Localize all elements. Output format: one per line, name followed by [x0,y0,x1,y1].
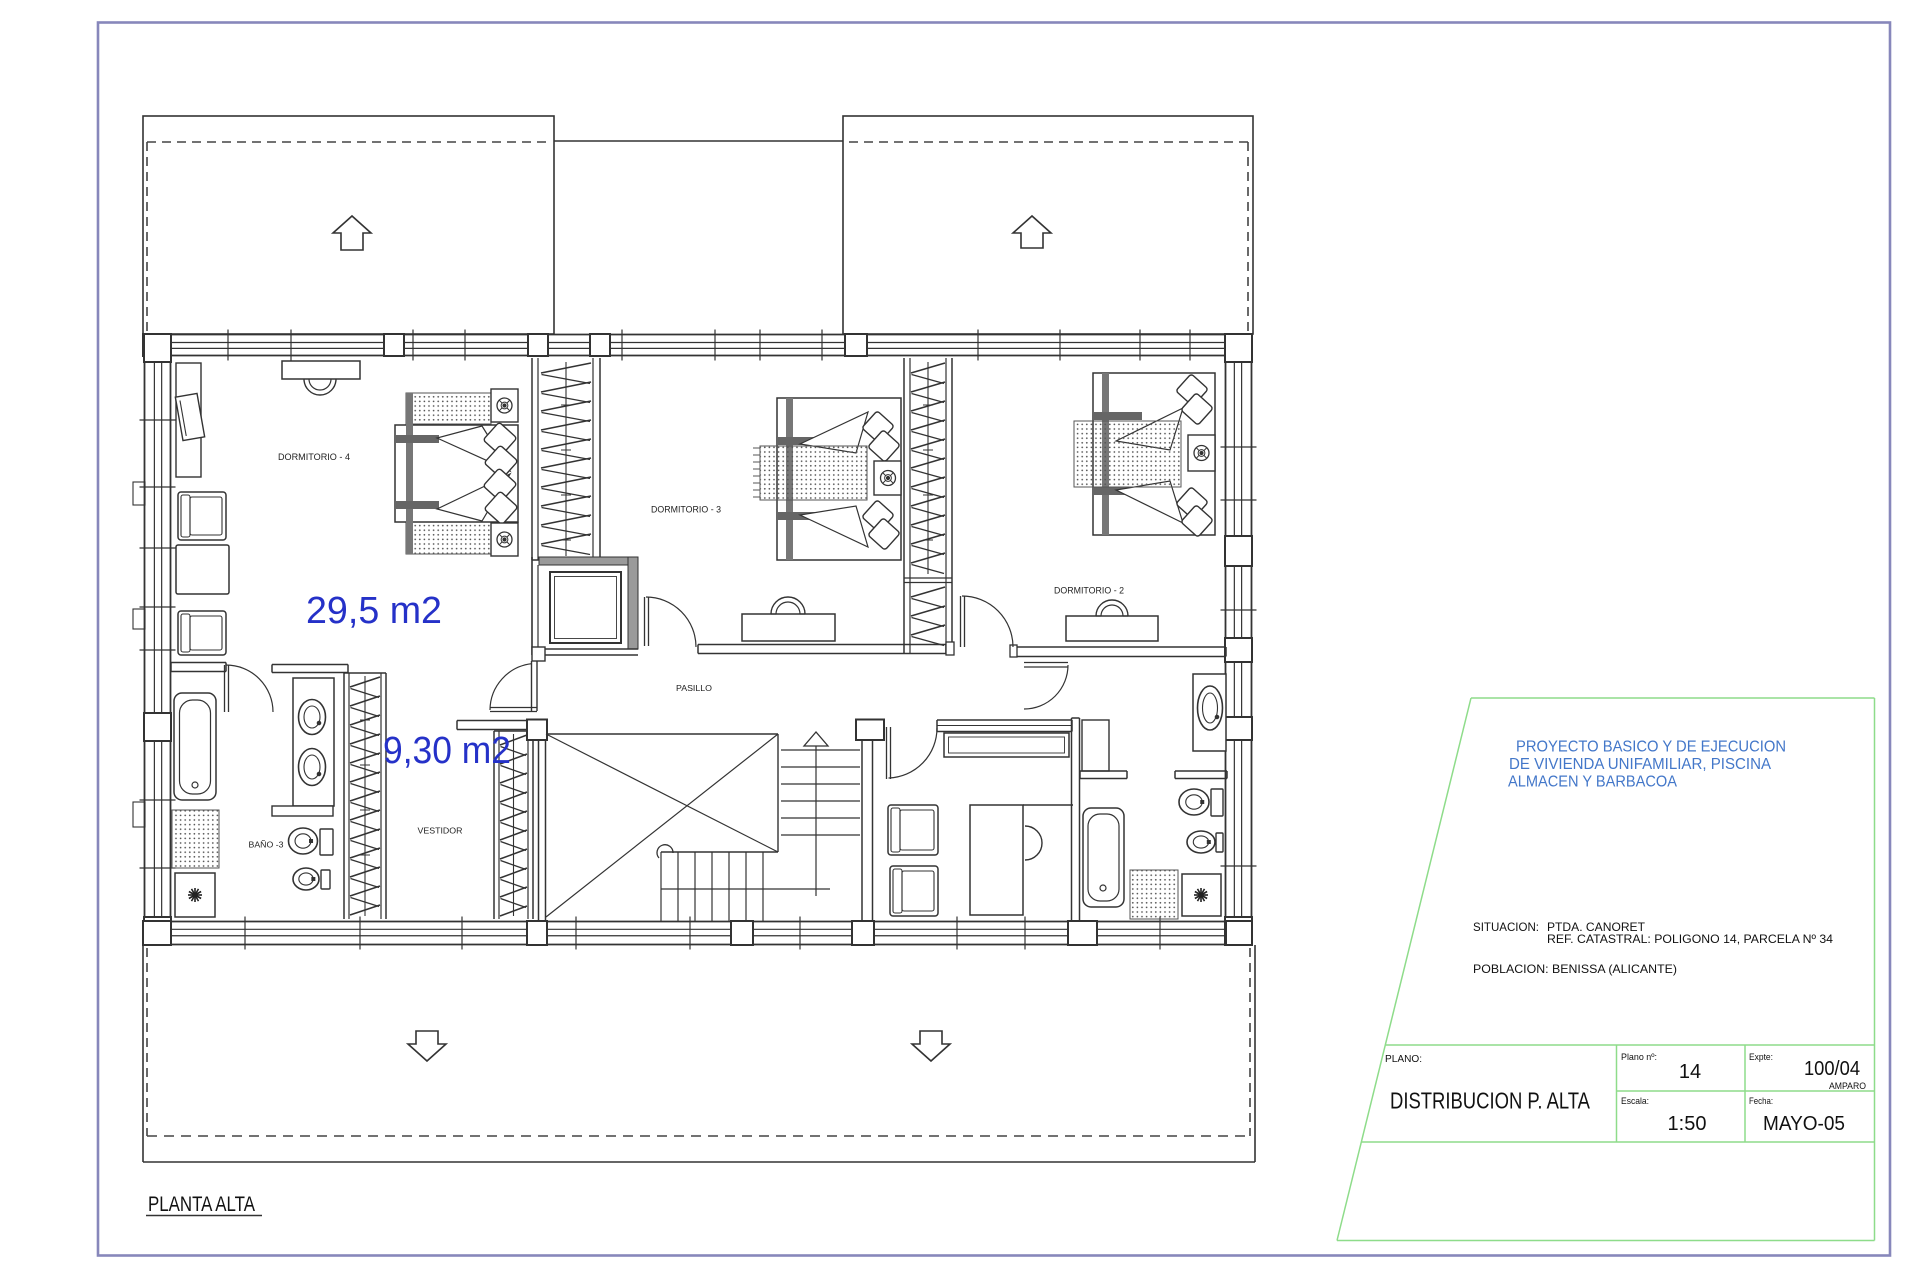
svg-text:Expte:: Expte: [1749,1052,1773,1063]
svg-text:1:50: 1:50 [1668,1113,1707,1135]
svg-text:MAYO-05: MAYO-05 [1763,1113,1845,1135]
svg-text:Fecha:: Fecha: [1749,1096,1773,1107]
svg-text:ALMACEN Y BARBACOA: ALMACEN Y BARBACOA [1508,774,1677,791]
svg-text:POBLACION: BENISSA (ALICANTE): POBLACION: BENISSA (ALICANTE) [1473,962,1677,976]
svg-text:Plano nº:: Plano nº: [1621,1052,1657,1063]
svg-text:PASILLO: PASILLO [676,683,712,693]
svg-text:BAÑO -3: BAÑO -3 [249,840,284,850]
svg-text:AMPARO: AMPARO [1829,1081,1866,1092]
svg-text:PLANTA ALTA: PLANTA ALTA [148,1193,255,1216]
svg-text:PLANO:: PLANO: [1385,1053,1422,1065]
svg-text:REF. CATASTRAL: POLIGONO 14, P: REF. CATASTRAL: POLIGONO 14, PARCELA Nº … [1547,932,1833,946]
svg-text:SITUACION:: SITUACION: [1473,920,1539,934]
svg-text:DORMITORIO - 3: DORMITORIO - 3 [651,505,721,515]
svg-text:DORMITORIO - 4: DORMITORIO - 4 [278,452,350,462]
svg-text:DE VIVIENDA UNIFAMILIAR, PISCI: DE VIVIENDA UNIFAMILIAR, PISCINA [1509,756,1771,773]
svg-text:14: 14 [1679,1061,1701,1083]
svg-text:9,30 m2: 9,30 m2 [383,730,511,772]
svg-text:29,5 m2: 29,5 m2 [306,590,442,632]
svg-text:DORMITORIO - 2: DORMITORIO - 2 [1054,586,1124,596]
svg-text:VESTIDOR: VESTIDOR [418,826,463,836]
svg-text:Escala:: Escala: [1621,1096,1649,1107]
svg-text:100/04: 100/04 [1804,1058,1860,1080]
svg-text:PROYECTO BASICO Y DE EJECUCION: PROYECTO BASICO Y DE EJECUCION [1516,739,1786,756]
svg-text:DISTRIBUCION P. ALTA: DISTRIBUCION P. ALTA [1390,1088,1591,1114]
